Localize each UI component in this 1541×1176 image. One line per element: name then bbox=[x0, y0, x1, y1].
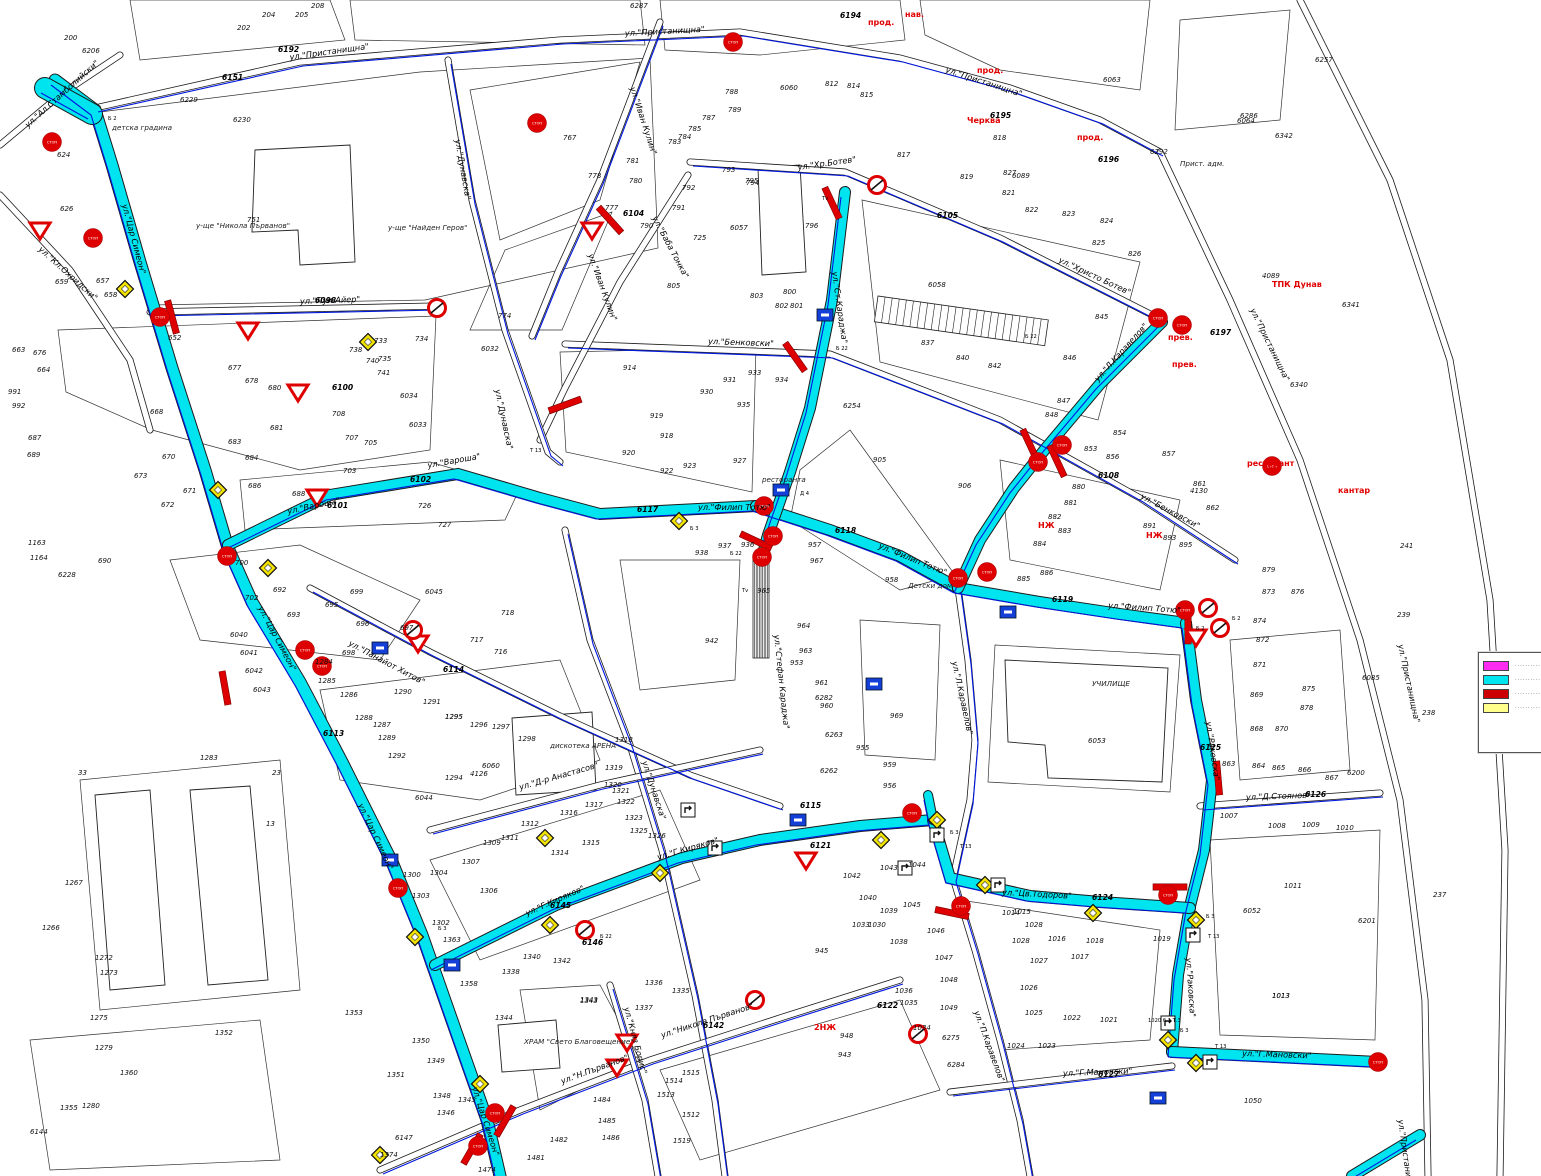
parcel-number-label: 6057 bbox=[730, 224, 748, 232]
parcel-number-label: 6041 bbox=[240, 649, 258, 657]
sign-code-label: Тv bbox=[741, 588, 748, 594]
parcel-number-label: 1013 bbox=[1272, 992, 1290, 1000]
parcel-number-label: 948 bbox=[840, 1032, 854, 1040]
parcel-number-label: 845 bbox=[1095, 313, 1109, 321]
poi-label: ХРАМ "Свето Благовещение" bbox=[523, 1037, 634, 1046]
parcel-number-label: 716 bbox=[494, 648, 508, 656]
road-number-label: 6126 bbox=[1305, 790, 1327, 799]
parcel-number-label: 688 bbox=[292, 490, 306, 498]
parcel-number-label: 781 bbox=[626, 157, 639, 165]
parcel-number-label: 668 bbox=[150, 408, 164, 416]
parcel-number-label: 1008 bbox=[1268, 822, 1286, 830]
street-name-label: ул."Стефан Караджа" bbox=[772, 633, 792, 729]
road-casing-right-outer-road bbox=[1300, 0, 1505, 1176]
parcel-number-label: 933 bbox=[748, 369, 761, 377]
parcel-number-label: 718 bbox=[501, 609, 515, 617]
parcel-number-label: 673 bbox=[134, 472, 147, 480]
bus-stop-sign-bar bbox=[794, 819, 802, 822]
parcel-number-label: 734 bbox=[415, 335, 428, 343]
parcel-number-label: 705 bbox=[364, 439, 378, 447]
parcel-number-label: 237 bbox=[1433, 891, 1447, 899]
parcel-number-label: 857 bbox=[1162, 450, 1176, 458]
parcel-number-label: 1050 bbox=[1244, 1097, 1262, 1105]
bus-stop-sign-bar bbox=[376, 647, 384, 650]
parcel-number-label: 208 bbox=[311, 2, 325, 10]
parcel-number-label: 767 bbox=[563, 134, 577, 142]
legend-yellow-swatch bbox=[1483, 703, 1509, 713]
parcel-number-label: 846 bbox=[1063, 354, 1077, 362]
parcel-number-label: 880 bbox=[1072, 483, 1086, 491]
parcel-block bbox=[1210, 830, 1380, 1040]
parcel-number-label: 1312 bbox=[521, 820, 539, 828]
parcel-number-label: 879 bbox=[1262, 566, 1276, 574]
parcel-number-label: 692 bbox=[273, 586, 287, 594]
parcel-number-label: 1374 bbox=[380, 1151, 398, 1159]
parcel-number-label: 895 bbox=[1179, 541, 1193, 549]
poi-label: детска градина bbox=[111, 123, 172, 132]
poi-red-label: прод. bbox=[977, 66, 1003, 75]
parcel-number-label: 1344 bbox=[495, 1014, 513, 1022]
parcel-number-label: 6340 bbox=[1290, 381, 1308, 389]
parcel-block bbox=[1230, 630, 1350, 780]
parcel-number-label: 6034 bbox=[400, 392, 418, 400]
stop-sign-text: СТОП bbox=[982, 571, 993, 575]
parcel-number-label: 1321 bbox=[612, 787, 630, 795]
parcel-number-label: 862 bbox=[1206, 504, 1220, 512]
parcel-number-label: 1352 bbox=[215, 1029, 233, 1037]
parcel-number-label: 936 bbox=[741, 541, 755, 549]
stop-sign-text: СТОП bbox=[47, 141, 58, 145]
bus-stop-sign-bar bbox=[870, 683, 878, 686]
parcel-number-label: 1289 bbox=[378, 734, 396, 742]
parcel-number-label: 6257 bbox=[1315, 56, 1333, 64]
parcel-number-label: 657 bbox=[96, 277, 110, 285]
parcel-number-label: 1317 bbox=[585, 801, 603, 809]
sign-code-label: 1020 б.1 Т.3 bbox=[1148, 1018, 1181, 1024]
road-casing-ul-benkovski bbox=[565, 344, 1235, 560]
street-name-label: ул."Дунавска" bbox=[453, 138, 474, 201]
parcel-number-label: 777 bbox=[605, 204, 619, 212]
parcel-number-label: 1045 bbox=[903, 901, 921, 909]
parcel-number-label: 874 bbox=[1253, 617, 1266, 625]
parcel-number-label: 659 bbox=[55, 278, 69, 286]
parcel-number-label: 1350 bbox=[412, 1037, 430, 1045]
parcel-number-label: 805 bbox=[667, 282, 681, 290]
parcel-number-label: 1034 bbox=[913, 1024, 931, 1032]
parcel-number-label: 938 bbox=[695, 549, 709, 557]
sign-code-label: Б 3 bbox=[690, 526, 699, 532]
parcel-number-label: 866 bbox=[1298, 766, 1312, 774]
parcel-number-label: 875 bbox=[1302, 685, 1316, 693]
road-number-label: 6192 bbox=[278, 45, 299, 54]
building-outline bbox=[758, 165, 806, 275]
parcel-number-label: 943 bbox=[838, 1051, 851, 1059]
parcel-number-label: 1482 bbox=[550, 1136, 568, 1144]
parcel-number-label: 1048 bbox=[940, 976, 958, 984]
road-number-label: 6194 bbox=[840, 11, 861, 20]
stop-sign-text: СТОП bbox=[222, 555, 233, 559]
poi-label: УЧИЛИЩЕ bbox=[1092, 679, 1130, 688]
parcel-number-label: 1318 bbox=[615, 736, 633, 744]
poi-red-label: прод. bbox=[1077, 133, 1103, 142]
legend-red-swatch bbox=[1483, 689, 1509, 699]
parcel-number-label: 4089 bbox=[1262, 272, 1280, 280]
parcel-number-label: 991 bbox=[8, 388, 21, 396]
parcel-number-label: 1315 bbox=[582, 839, 600, 847]
poi-red-label: нав. bbox=[905, 10, 924, 19]
poi-label: у-ще "Никола Първанов" bbox=[195, 221, 290, 230]
info-sign-icon bbox=[681, 803, 695, 817]
parcel-number-label: 812 bbox=[825, 80, 839, 88]
parcel-number-label: 687 bbox=[28, 434, 42, 442]
parcel-number-label: 6200 bbox=[1347, 769, 1365, 777]
info-sign-icon bbox=[1203, 1055, 1217, 1069]
parcel-number-label: 780 bbox=[629, 177, 643, 185]
parcel-number-label: 1353 bbox=[345, 1009, 363, 1017]
parcel-number-label: 1346 bbox=[437, 1109, 455, 1117]
stop-sign-text: СТОП bbox=[953, 577, 964, 581]
parcel-number-label: 818 bbox=[993, 134, 1007, 142]
parcel-number-label: 1355 bbox=[60, 1104, 78, 1112]
parcel-number-label: 792 bbox=[682, 184, 696, 192]
poi-label: дискотека АРЕНА bbox=[549, 741, 616, 750]
stop-sign-text: СТОП bbox=[956, 905, 967, 909]
parcel-number-label: 717 bbox=[470, 636, 484, 644]
sign-code-label: Т 13 bbox=[529, 448, 541, 454]
sign-code-label: Б 2 bbox=[1196, 626, 1205, 632]
waterline-ul-n-parvanov bbox=[383, 984, 903, 1174]
parcel-number-label: 4126 bbox=[470, 770, 488, 778]
stop-sign-text: СТОП bbox=[1033, 461, 1044, 465]
parcel-number-label: 867 bbox=[1325, 774, 1339, 782]
parcel-number-label: 1026 bbox=[1020, 984, 1038, 992]
road-number-label: 6114 bbox=[443, 665, 464, 674]
street-name-label: ул."Филип Тотю" bbox=[697, 502, 771, 512]
parcel-number-label: 863 bbox=[1222, 760, 1235, 768]
parcel-number-label: 1030 bbox=[868, 921, 886, 929]
parcel-number-label: 700 bbox=[235, 559, 249, 567]
parcel-number-label: 664 bbox=[37, 366, 50, 374]
parcel-number-label: 1028 bbox=[1025, 921, 1043, 929]
parcel-number-label: 854 bbox=[1113, 429, 1126, 437]
road-number-label: 6142 bbox=[703, 1021, 724, 1030]
parcel-number-label: 6033 bbox=[409, 421, 427, 429]
parcel-number-label: 842 bbox=[988, 362, 1002, 370]
parcel-number-label: 878 bbox=[1300, 704, 1314, 712]
parcel-number-label: 1348 bbox=[433, 1092, 451, 1100]
parcel-number-label: 6201 bbox=[1358, 917, 1376, 925]
legend-row-legend-cyan: ·········· bbox=[1479, 673, 1541, 687]
parcel-number-label: 686 bbox=[248, 482, 262, 490]
parcel-number-label: 6147 bbox=[395, 1134, 413, 1142]
legend-yellow-label: ·········· bbox=[1515, 705, 1541, 711]
parcel-number-label: 703 bbox=[343, 467, 356, 475]
parcel-number-label: 1513 bbox=[657, 1091, 675, 1099]
parcel-number-label: 967 bbox=[810, 557, 824, 565]
parcel-number-label: 1306 bbox=[480, 887, 498, 895]
parcel-number-label: 239 bbox=[1397, 611, 1411, 619]
parcel-number-label: 1279 bbox=[95, 1044, 113, 1052]
poi-label: Прист. адм. bbox=[1180, 159, 1224, 168]
road-casing-ul-pristanishtna-right bbox=[1160, 152, 1428, 1176]
stop-sign-text: СТОП bbox=[1057, 444, 1068, 448]
parcel-number-label: 6052 bbox=[1243, 907, 1261, 915]
yield-sign-icon bbox=[582, 223, 602, 239]
parcel-number-label: 1309 bbox=[483, 839, 501, 847]
parcel-number-label: 872 bbox=[1256, 636, 1270, 644]
parcel-number-label: 6040 bbox=[230, 631, 248, 639]
poi-label: у-ще "Найден Геров" bbox=[387, 223, 467, 232]
parcel-number-label: 727 bbox=[438, 521, 452, 529]
parcel-number-label: 1023 bbox=[1038, 1042, 1056, 1050]
stop-sign-text: СТОП bbox=[393, 887, 404, 891]
sign-code-label: Т 13 bbox=[1207, 934, 1219, 940]
stop-sign-text: СТОП bbox=[1153, 317, 1164, 321]
parcel-number-label: 1019 bbox=[1153, 935, 1171, 943]
parcel-number-label: 6044 bbox=[415, 794, 433, 802]
sign-code-label: Б 2 bbox=[1232, 616, 1241, 622]
parcel-number-label: 1290 bbox=[394, 688, 412, 696]
parcel-number-label: 1303 bbox=[412, 892, 430, 900]
parcel-number-label: 626 bbox=[60, 205, 74, 213]
parcel-number-label: 1294 bbox=[445, 774, 463, 782]
parcel-number-label: 826 bbox=[1128, 250, 1142, 258]
parcel-number-label: 6284 bbox=[947, 1061, 965, 1069]
parcel-number-label: 1285 bbox=[318, 677, 336, 685]
parcel-number-label: 699 bbox=[350, 588, 364, 596]
parcel-number-label: 238 bbox=[1422, 709, 1436, 717]
parcel-number-label: 965 bbox=[757, 587, 771, 595]
road-number-label: 6105 bbox=[937, 211, 958, 220]
parcel-number-label: 1291 bbox=[423, 698, 441, 706]
map-canvas[interactable]: СТОПСТОПСТОПСТОПСТОПСТОПСТОПСТОПСТОПСТОП… bbox=[0, 0, 1541, 1176]
parcel-block bbox=[30, 1020, 280, 1170]
parcel-number-label: 740 bbox=[366, 357, 380, 365]
road-number-label: 6115 bbox=[800, 801, 821, 810]
parcel-number-label: 741 bbox=[377, 369, 390, 377]
parcel-number-label: 1272 bbox=[95, 954, 113, 962]
street-name-label: ул."Раковска" bbox=[1184, 956, 1198, 1017]
parcel-number-label: 931 bbox=[723, 376, 736, 384]
poi-red-label: НЖ bbox=[1038, 521, 1055, 530]
parcel-number-label: 702 bbox=[245, 594, 259, 602]
parcel-number-label: 802 bbox=[775, 302, 789, 310]
stop-sign-text: СТОП bbox=[473, 1145, 484, 1149]
parcel-number-label: 927 bbox=[733, 457, 747, 465]
parcel-number-label: 1047 bbox=[935, 954, 953, 962]
parcel-number-label: 964 bbox=[797, 622, 810, 630]
parcel-number-label: 814 bbox=[847, 82, 860, 90]
parcel-number-label: 1007 bbox=[1220, 812, 1238, 820]
sign-code-label: Т 13 bbox=[959, 844, 971, 850]
bus-stop-sign-bar bbox=[1154, 1097, 1162, 1100]
road-number-label: 6117 bbox=[637, 505, 659, 514]
road-number-label: 6104 bbox=[623, 209, 644, 218]
parcel-number-label: 1486 bbox=[602, 1134, 620, 1142]
parcel-number-label: 795 bbox=[745, 177, 759, 185]
parcel-number-label: 1335 bbox=[672, 987, 690, 995]
parcel-number-label: 784 bbox=[678, 133, 691, 141]
road-number-label: 6197 bbox=[1210, 328, 1232, 337]
road-number-label: 6098 bbox=[315, 296, 336, 305]
sign-code-label: Б 3 bbox=[1180, 1028, 1189, 1034]
parcel-number-label: 815 bbox=[860, 91, 874, 99]
parcel-number-label: 6229 bbox=[180, 96, 198, 104]
building-outline bbox=[1005, 660, 1168, 782]
yield-sign-icon bbox=[238, 323, 258, 339]
parcel-number-label: 801 bbox=[790, 302, 803, 310]
parcel-number-label: 1043 bbox=[880, 864, 898, 872]
parcel-number-label: 698 bbox=[342, 649, 356, 657]
legend-cyan-swatch bbox=[1483, 675, 1509, 685]
road-fill-right-outer-road bbox=[1300, 0, 1505, 1176]
parcel-number-label: 824 bbox=[1100, 217, 1113, 225]
road-number-label: 6125 bbox=[1200, 743, 1221, 752]
parcel-number-label: 690 bbox=[98, 557, 112, 565]
parcel-number-label: 680 bbox=[268, 384, 282, 392]
street-name-label: ул."Дунавска" bbox=[493, 387, 516, 450]
road-number-label: 6118 bbox=[835, 526, 856, 535]
parcel-number-label: 918 bbox=[660, 432, 674, 440]
stop-sign-text: СТОП bbox=[490, 1112, 501, 1116]
parcel-number-label: 847 bbox=[1057, 397, 1071, 405]
parcel-number-label: 6206 bbox=[82, 47, 100, 55]
parcel-number-label: 1512 bbox=[682, 1111, 700, 1119]
parcel-number-label: 1022 bbox=[1063, 1014, 1081, 1022]
bus-stop-sign-bar bbox=[777, 489, 785, 492]
cadastral-map-svg[interactable]: СТОПСТОПСТОПСТОПСТОПСТОПСТОПСТОПСТОПСТОП… bbox=[0, 0, 1541, 1176]
parcel-number-label: 6089 bbox=[1012, 172, 1030, 180]
parcel-number-label: 1343 bbox=[580, 996, 598, 1004]
parcel-number-label: 1304 bbox=[430, 869, 448, 877]
parcel-number-label: 1307 bbox=[462, 858, 480, 866]
parcel-number-label: 202 bbox=[237, 24, 251, 32]
parcel-number-label: 1298 bbox=[518, 735, 536, 743]
parcel-number-label: 1275 bbox=[90, 1014, 108, 1022]
bus-stop-sign-bar bbox=[1004, 611, 1012, 614]
parcel-number-label: 1358 bbox=[460, 980, 478, 988]
poi-label: ресторанта bbox=[761, 475, 806, 484]
parcel-number-label: 1300 bbox=[403, 871, 421, 879]
parcel-number-label: 884 bbox=[1033, 540, 1046, 548]
parcel-number-label: 869 bbox=[1250, 691, 1264, 699]
parcel-number-label: 864 bbox=[1252, 762, 1265, 770]
parcel-number-label: 1316 bbox=[560, 809, 578, 817]
parcel-number-label: 1042 bbox=[843, 872, 861, 880]
parcel-number-label: 803 bbox=[750, 292, 763, 300]
yield-sign-icon bbox=[288, 385, 308, 401]
parcel-number-label: 919 bbox=[650, 412, 664, 420]
parcel-number-label: 1009 bbox=[1302, 821, 1320, 829]
parcel-number-label: 1283 bbox=[200, 754, 218, 762]
parcel-number-label: 33 bbox=[78, 769, 87, 777]
parcel-number-label: 868 bbox=[1250, 725, 1264, 733]
parcel-number-label: 881 bbox=[1064, 499, 1077, 507]
parcel-number-label: 672 bbox=[161, 501, 175, 509]
road-number-label: 6124 bbox=[1092, 893, 1113, 902]
road-number-label: 6127 bbox=[1098, 1070, 1120, 1079]
poi-red-label: ресторант bbox=[1247, 459, 1295, 468]
parcel-number-label: 684 bbox=[245, 454, 258, 462]
street-name-label: ул."Иван Кулин" bbox=[628, 85, 660, 156]
poi-red-label: НЖ bbox=[1146, 531, 1163, 540]
parcel-number-label: 969 bbox=[890, 712, 904, 720]
sign-code-label: Б 22 bbox=[1025, 334, 1037, 340]
road-number-label: 6122 bbox=[877, 1001, 898, 1010]
parcel-number-label: 870 bbox=[1275, 725, 1289, 733]
poi-label: Детски дом bbox=[907, 581, 953, 590]
parcel-number-label: 6263 bbox=[825, 731, 843, 739]
stop-sign-text: СТОП bbox=[1373, 1061, 1384, 1065]
parcel-number-label: 882 bbox=[1048, 513, 1062, 521]
bus-stop-sign-bar bbox=[821, 314, 829, 317]
parcel-number-label: 791 bbox=[672, 204, 685, 212]
parcel-number-label: 823 bbox=[1062, 210, 1075, 218]
road-fill-ul-p-karavelov-s bbox=[953, 878, 1030, 1176]
parcel-number-label: 6042 bbox=[245, 667, 263, 675]
parcel-number-label: 1025 bbox=[1025, 1009, 1043, 1017]
parcel-number-label: 6085 bbox=[1362, 674, 1380, 682]
parcel-comb bbox=[753, 560, 769, 658]
parcel-number-label: 956 bbox=[883, 782, 897, 790]
parcel-number-label: 1049 bbox=[940, 1004, 958, 1012]
street-name-label: ул."Цв.Тодоров" bbox=[1001, 887, 1072, 901]
parcel-number-label: 689 bbox=[27, 451, 41, 459]
info-sign-icon bbox=[1186, 928, 1200, 942]
parcel-number-label: 6342 bbox=[1275, 132, 1293, 140]
parcel-number-label: 1164 bbox=[30, 554, 48, 562]
building-outline bbox=[252, 145, 355, 265]
parcel-number-label: 1267 bbox=[65, 879, 83, 887]
parcel-number-label: 960 bbox=[820, 702, 834, 710]
street-name-label: ул."Пристанищна" bbox=[1396, 642, 1423, 723]
sign-code-label: Б 22 bbox=[836, 346, 848, 352]
parcel-number-label: 1027 bbox=[1030, 957, 1048, 965]
parcel-number-label: 6275 bbox=[942, 1034, 960, 1042]
parcel-number-label: 671 bbox=[183, 487, 196, 495]
parcel-number-label: 6230 bbox=[233, 116, 251, 124]
road-closed-bar-icon bbox=[219, 671, 231, 706]
parcel-number-label: 1296 bbox=[470, 721, 488, 729]
parcel-number-label: 6341 bbox=[1342, 301, 1360, 309]
road-number-label: 6196 bbox=[1098, 155, 1120, 164]
parcel-number-label: 1039 bbox=[880, 907, 898, 915]
parcel-number-label: 205 bbox=[295, 11, 309, 19]
parcel-number-label: 677 bbox=[228, 364, 242, 372]
parcel-number-label: 1340 bbox=[523, 953, 541, 961]
parcel-number-label: 6053 bbox=[1088, 737, 1106, 745]
parcel-number-label: 6045 bbox=[425, 588, 443, 596]
parcel-number-label: 914 bbox=[623, 364, 636, 372]
parcel-number-label: 774 bbox=[498, 312, 511, 320]
poi-red-label: прев. bbox=[1168, 333, 1193, 342]
parcel-block bbox=[960, 900, 1160, 1050]
parcel-number-label: 1286 bbox=[340, 691, 358, 699]
parcel-number-label: 848 bbox=[1045, 411, 1059, 419]
sign-code-label: Тv bbox=[821, 196, 828, 202]
stop-sign-text: СТОП bbox=[300, 649, 311, 653]
poi-red-label: прев. bbox=[1172, 360, 1197, 369]
parcel-number-label: 1360 bbox=[120, 1069, 138, 1077]
parcel-number-label: 1345 bbox=[458, 1096, 476, 1104]
road-number-label: 6113 bbox=[323, 729, 344, 738]
parcel-number-label: 695 bbox=[325, 601, 339, 609]
parcel-number-label: 873 bbox=[1262, 588, 1275, 596]
road-number-label: 6119 bbox=[1052, 595, 1073, 604]
legend-row-legend-yellow: ·········· bbox=[1479, 701, 1541, 715]
parcel-number-label: 1325 bbox=[630, 827, 648, 835]
parcel-number-label: 825 bbox=[1092, 239, 1106, 247]
